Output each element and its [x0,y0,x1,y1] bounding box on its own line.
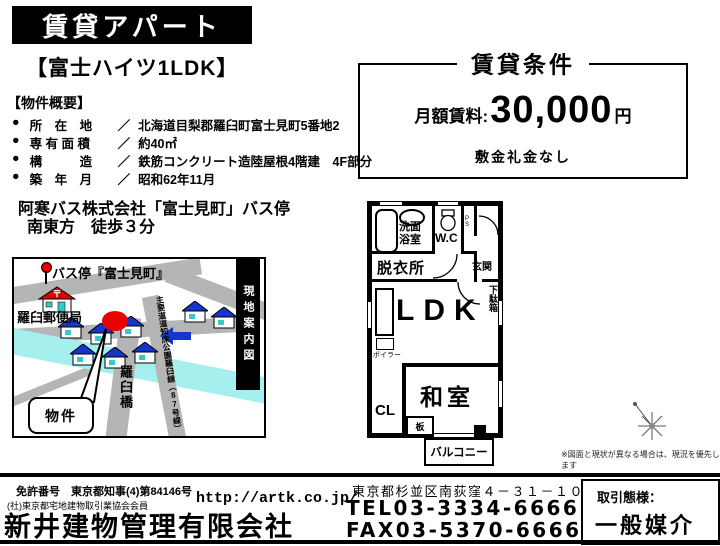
banner-title: 賃貸アパート [42,7,221,44]
shoe-cabinet-label: 下駄箱 [487,285,500,312]
callout-tail [72,327,116,403]
overview-label: 築 年 月 [30,169,112,187]
balcony-label: バルコニー [430,444,487,460]
fax-number: FAX03-5370-6666 [346,518,582,542]
bullet-icon: ● [12,151,20,169]
overview-heading: 【物件概要】 [7,93,91,113]
compass-icon [628,398,672,444]
rent-label: 月額賃料: [415,102,489,127]
overview-row-structure: ●構 造／鉄筋コンクリート造陸屋根4階建 4F部分 [12,151,372,169]
window [498,381,503,407]
footer-divider [0,473,720,477]
bus-stop-pole [45,271,47,284]
disclaimer-note: ※図面と現状が異なる場合は、現況を優先します [561,449,720,471]
overview-label: 所 在 地 [30,115,112,133]
deposit-note: 敷金礼金なし [360,147,686,167]
house-icon [182,301,208,323]
rent-unit: 円 [614,102,631,127]
separator: ／ [118,151,131,169]
boiler-label: ボイラー [373,350,401,360]
floor-plan: 板 洗面 浴室 W.C PS 玄関 脱衣所 下駄箱 LDK ボイラー 和室 CL [367,201,503,438]
separator: ／ [118,115,131,133]
overview-label: 構 造 [30,151,112,169]
map-side-strip: 現地案内図 [236,259,260,390]
wc-label: W.C [435,231,458,245]
overview-row-location: ●所 在 地／北海道目梨郡羅臼町富士見町5番地2 [12,115,339,133]
terms-title: 賃貸条件 [457,45,589,79]
access-line2: 南東方 徒歩３分 [27,213,155,237]
bullet-icon: ● [12,169,20,187]
separator: ／ [118,169,131,187]
overview-value: 約40㎡ [138,133,177,151]
bottom-border [0,540,720,544]
terms-box: 賃貸条件 月額賃料: 30,000 円 敷金礼金なし [358,63,688,179]
license-number: 免許番号 東京都知事(4)第84146号 [16,483,192,499]
overview-value: 昭和62年11月 [138,169,215,187]
rent-value: 30,000 [490,89,612,132]
rental-flyer: 賃貸アパート 【富士ハイツ1LDK】 【物件概要】 ●所 在 地／北海道目梨郡羅… [0,0,720,546]
overview-row-built: ●築 年 月／昭和62年11月 [12,169,215,187]
ps-label: PS [464,216,470,228]
house-icon [132,342,158,364]
post-office-label: 羅臼郵便局 [17,307,82,326]
entrance-label: 玄関 [472,258,492,273]
transaction-type-box: 取引態様： 一般媒介 [581,479,720,545]
overview-label: 専 有 面 積 [30,133,112,151]
rent-line: 月額賃料: 30,000 円 [360,89,686,132]
transaction-type-value: 一般媒介 [595,508,695,540]
svg-text:〒: 〒 [52,289,61,299]
japanese-room-label: 和室 [420,378,474,412]
bullet-icon: ● [12,115,20,133]
balcony-box: バルコニー [424,438,494,466]
phone-number: TEL03-3334-6666 [346,496,579,520]
bus-stop-label: バス停『富士見町』 [52,263,169,282]
bullet-icon: ● [12,133,20,151]
banner: 賃貸アパート [12,6,252,44]
company-url: http://artk.co.jp/ [196,490,358,507]
bath-label: 洗面 浴室 [399,221,421,246]
location-map: 〒 物件 バス停『富士見町』 羅臼郵便局 羅臼橋 主要道道知床公園羅臼線（87号… [12,257,266,438]
ldk-label: LDK [396,294,485,328]
callout-label: 物件 [45,406,77,426]
bridge-label: 羅臼橋 [116,365,135,410]
separator: ／ [118,133,131,151]
property-name: 【富士ハイツ1LDK】 [26,52,238,82]
map-side-label: 現地案内図 [240,285,256,365]
property-callout: 物件 [28,397,94,434]
closet-label: CL [375,402,395,419]
transaction-type-label: 取引態様： [597,487,662,506]
overview-value: 北海道目梨郡羅臼町富士見町5番地2 [138,115,339,133]
dressing-room-label: 脱衣所 [377,257,425,278]
house-icon [211,307,237,329]
overview-value: 鉄筋コンクリート造陸屋根4階建 4F部分 [138,151,372,169]
company-name: 新井建物管理有限会社 [4,505,294,544]
overview-row-area: ●専 有 面 積／約40㎡ [12,133,177,151]
